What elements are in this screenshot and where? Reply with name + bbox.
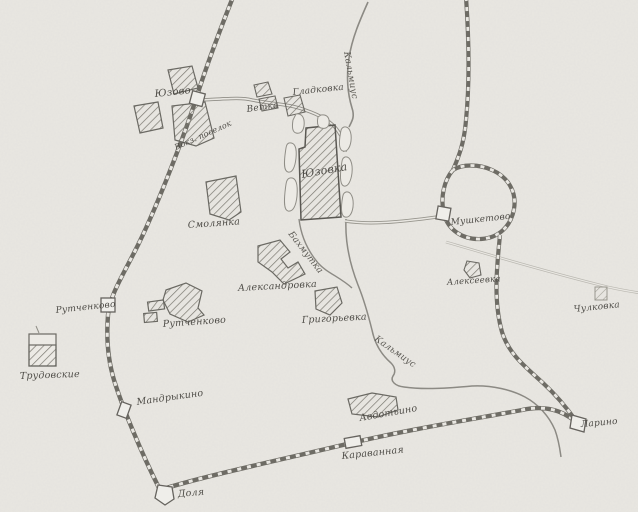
settlement-chulkovka-shape [595, 287, 607, 300]
paper-grain-texture [0, 0, 638, 512]
station-marker-mushketovo [436, 206, 451, 221]
station-marker-karavannaya [344, 436, 361, 449]
station-marker-yuzovo [189, 91, 205, 107]
hand-drawn-map: Юзово Вокз. поселок Ветка Гладковка Юзов… [0, 0, 638, 512]
label-trudovskie: Трудовские [20, 369, 80, 382]
map-svg: Юзово Вокз. поселок Ветка Гладковка Юзов… [0, 0, 638, 512]
settlement-smolyanka-shape [206, 176, 241, 220]
